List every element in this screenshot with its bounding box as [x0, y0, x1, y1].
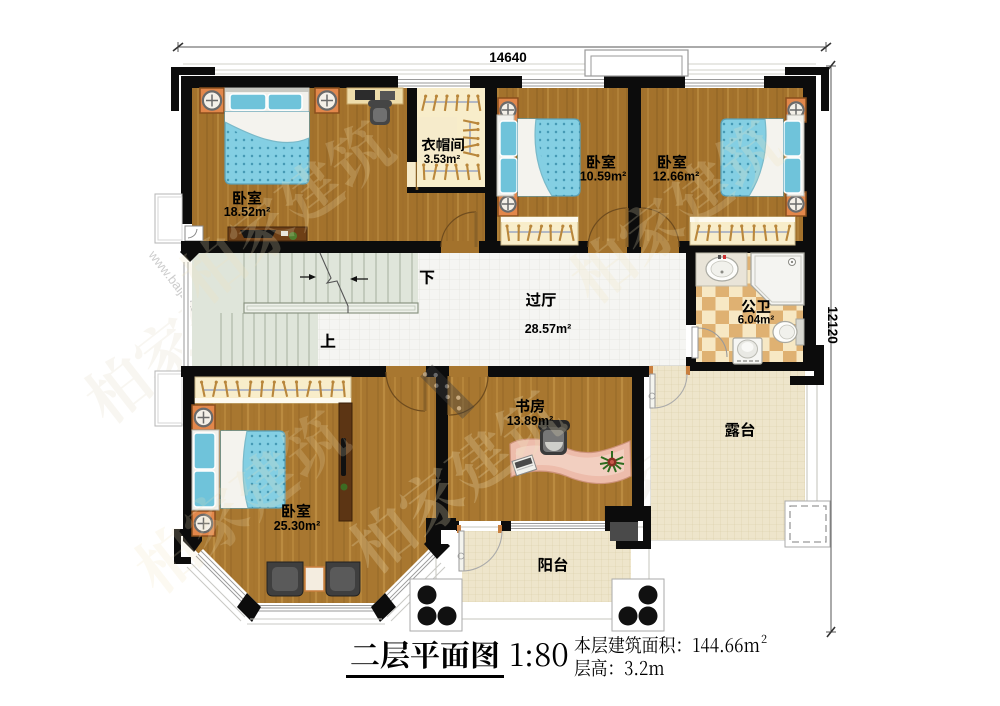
svg-text:18.52m²: 18.52m²	[224, 205, 271, 219]
svg-text:10.59m²: 10.59m²	[580, 170, 627, 184]
svg-text:12120: 12120	[825, 306, 840, 344]
svg-text:12.66m²: 12.66m²	[653, 170, 700, 184]
svg-text:28.57m²: 28.57m²	[525, 322, 572, 336]
svg-text:14640: 14640	[489, 50, 527, 65]
svg-text:13.89m²: 13.89m²	[507, 414, 554, 428]
svg-text:25.30m²: 25.30m²	[274, 519, 321, 533]
svg-text:6.04m²: 6.04m²	[738, 315, 775, 327]
svg-text:3.53m²: 3.53m²	[424, 154, 461, 166]
